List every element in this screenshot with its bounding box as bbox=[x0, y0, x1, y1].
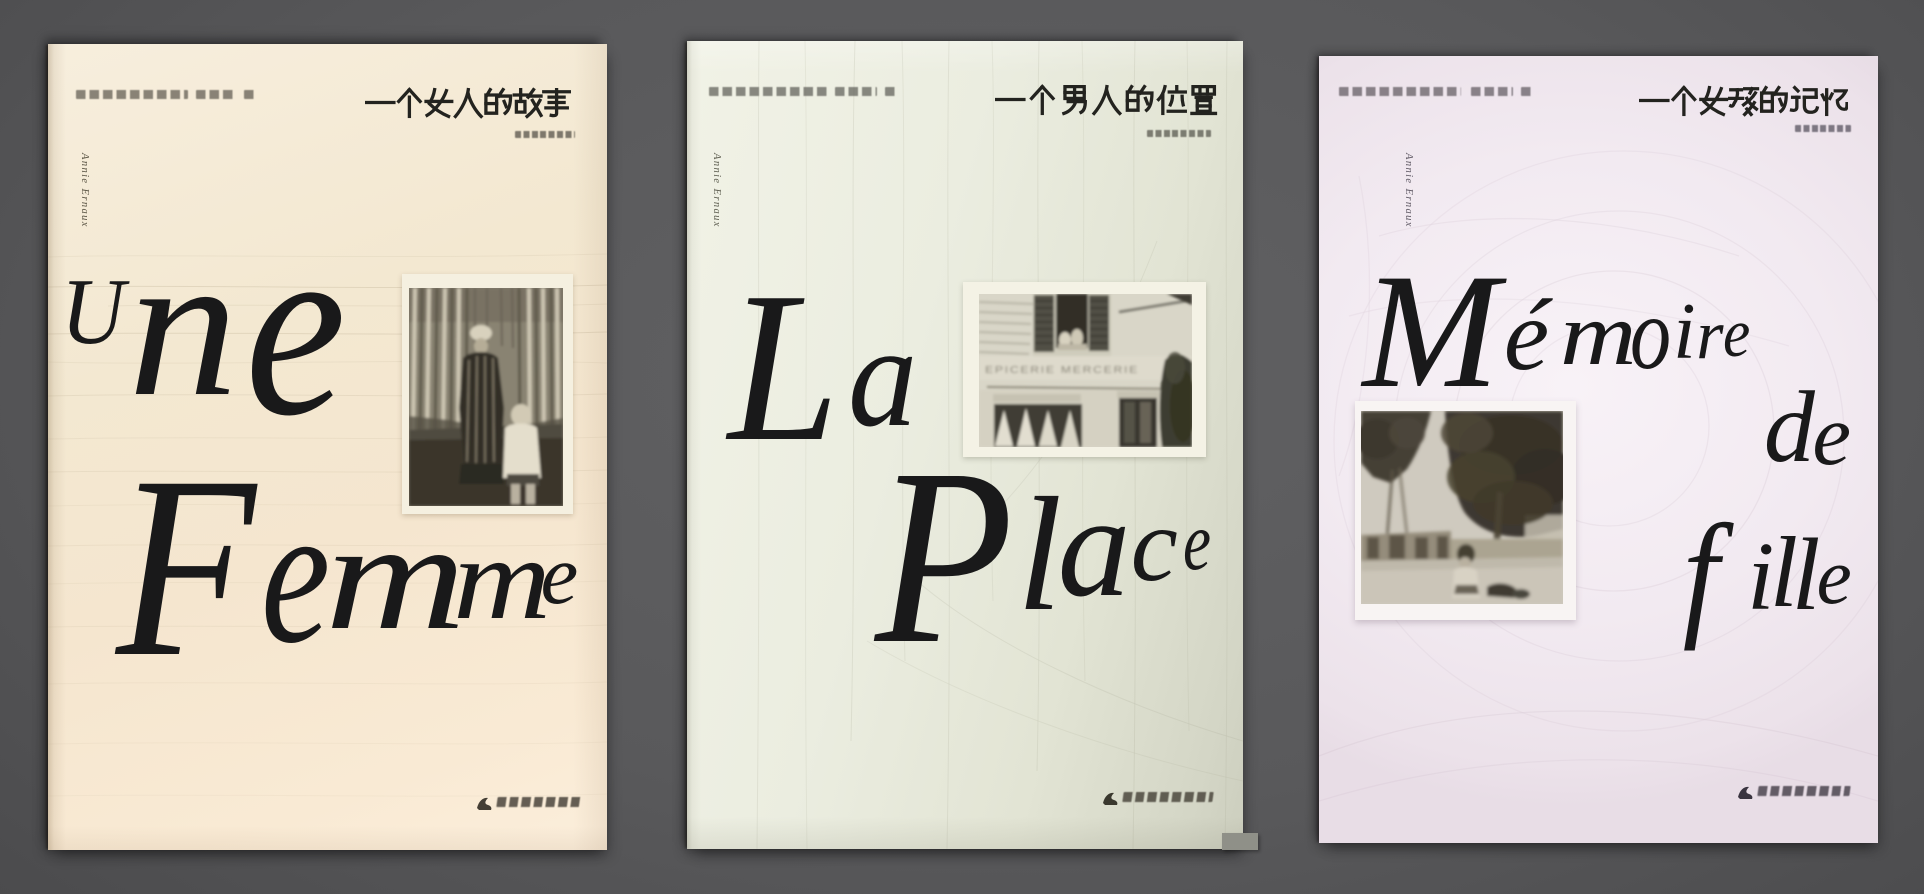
svg-text:EPICERIE MERCERIE: EPICERIE MERCERIE bbox=[985, 364, 1139, 376]
